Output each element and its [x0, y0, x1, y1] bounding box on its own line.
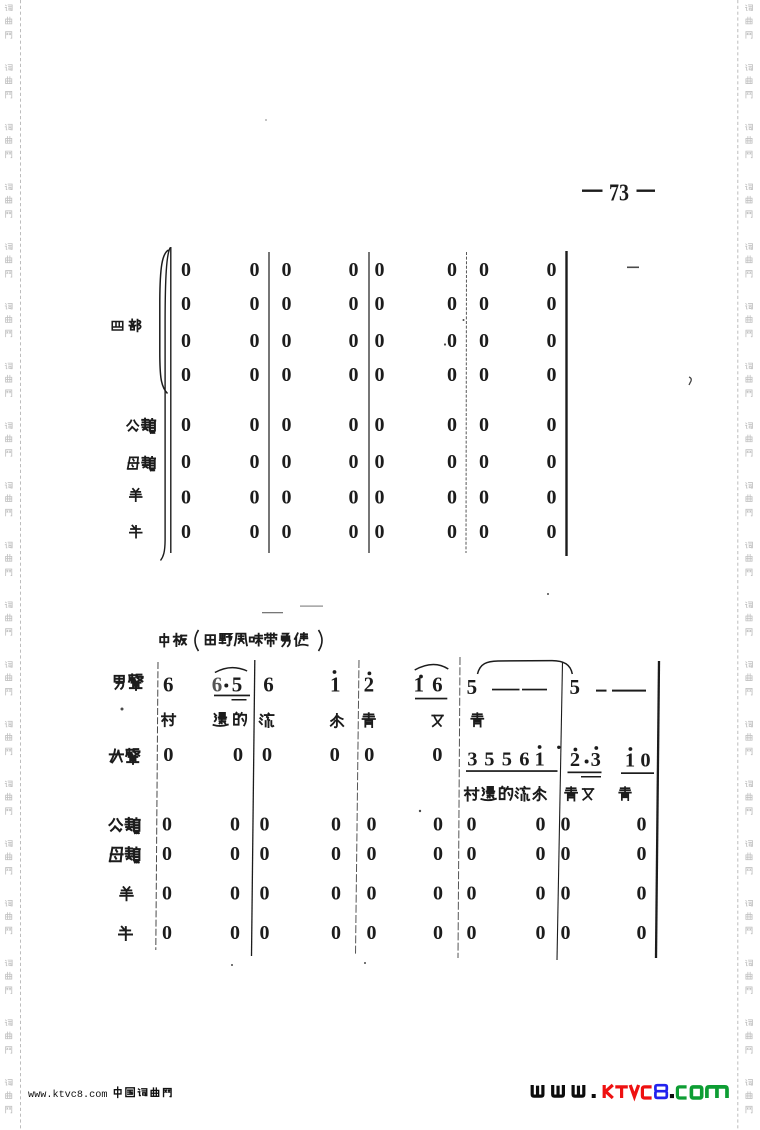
svg-text:0: 0	[282, 330, 292, 352]
svg-text:0: 0	[479, 487, 489, 509]
svg-text:0: 0	[637, 843, 647, 865]
svg-text:0: 0	[331, 843, 341, 865]
svg-text:0: 0	[467, 843, 477, 865]
svg-text:0: 0	[547, 521, 557, 543]
svg-text:0: 0	[640, 750, 650, 772]
svg-text:6: 6	[163, 673, 174, 697]
svg-text:0: 0	[367, 883, 377, 905]
svg-text:5: 5	[232, 673, 243, 697]
svg-text:0: 0	[536, 883, 546, 905]
svg-text:0: 0	[349, 414, 359, 436]
svg-text:5: 5	[569, 675, 580, 699]
svg-text:3: 3	[591, 749, 601, 771]
svg-text:0: 0	[349, 364, 359, 386]
svg-text:0: 0	[375, 293, 385, 315]
svg-text:0: 0	[230, 883, 240, 905]
svg-text:0: 0	[637, 883, 647, 905]
svg-text:0: 0	[447, 259, 457, 281]
svg-text:0: 0	[479, 293, 489, 315]
svg-text:0: 0	[467, 883, 477, 905]
svg-text:0: 0	[250, 487, 260, 509]
svg-text:0: 0	[181, 521, 191, 543]
svg-text:0: 0	[547, 487, 557, 509]
svg-text:0: 0	[349, 330, 359, 352]
svg-text:0: 0	[367, 922, 377, 944]
svg-text:5: 5	[467, 675, 478, 699]
svg-text:0: 0	[547, 451, 557, 473]
svg-text:0: 0	[331, 883, 341, 905]
svg-text:0: 0	[467, 814, 477, 836]
svg-text:0: 0	[349, 521, 359, 543]
svg-text:0: 0	[375, 330, 385, 352]
svg-text:0: 0	[181, 259, 191, 281]
svg-text:0: 0	[250, 259, 260, 281]
svg-text:0: 0	[250, 451, 260, 473]
svg-text:0: 0	[331, 922, 341, 944]
svg-text:0: 0	[181, 364, 191, 386]
svg-text:0: 0	[349, 259, 359, 281]
svg-text:www.ktvc8.com: www.ktvc8.com	[28, 1089, 107, 1101]
svg-text:0: 0	[162, 843, 172, 865]
svg-text:0: 0	[447, 364, 457, 386]
svg-text:0: 0	[637, 814, 647, 836]
svg-text:0: 0	[561, 843, 571, 865]
svg-text:0: 0	[433, 814, 443, 836]
svg-text:0: 0	[250, 414, 260, 436]
svg-text:0: 0	[233, 744, 243, 766]
svg-text:0: 0	[561, 922, 571, 944]
svg-text:0: 0	[250, 364, 260, 386]
svg-text:0: 0	[282, 259, 292, 281]
svg-text:0: 0	[260, 883, 270, 905]
svg-text:0: 0	[349, 451, 359, 473]
svg-text:6: 6	[212, 673, 223, 697]
svg-text:0: 0	[260, 814, 270, 836]
svg-text:0: 0	[364, 744, 374, 766]
svg-text:0: 0	[162, 883, 172, 905]
svg-text:0: 0	[561, 883, 571, 905]
svg-text:0: 0	[447, 487, 457, 509]
svg-text:0: 0	[262, 744, 272, 766]
svg-text:0: 0	[637, 922, 647, 944]
svg-text:0: 0	[375, 259, 385, 281]
svg-text:0: 0	[561, 814, 571, 836]
svg-text:73: 73	[609, 180, 629, 207]
svg-text:0: 0	[367, 814, 377, 836]
svg-text:0: 0	[282, 521, 292, 543]
svg-text:6: 6	[519, 749, 529, 771]
svg-text:5: 5	[484, 749, 494, 771]
svg-text:0: 0	[547, 293, 557, 315]
svg-text:0: 0	[260, 922, 270, 944]
svg-text:0: 0	[432, 744, 442, 766]
svg-text:0: 0	[181, 293, 191, 315]
svg-text:0: 0	[547, 259, 557, 281]
svg-text:0: 0	[547, 330, 557, 352]
svg-text:0: 0	[331, 814, 341, 836]
svg-text:0: 0	[181, 414, 191, 436]
svg-text:0: 0	[375, 521, 385, 543]
svg-text:2: 2	[364, 673, 375, 697]
svg-text:0: 0	[547, 414, 557, 436]
svg-text:0: 0	[375, 487, 385, 509]
svg-text:0: 0	[181, 487, 191, 509]
svg-text:0: 0	[479, 414, 489, 436]
svg-text:2: 2	[570, 749, 580, 771]
svg-text:0: 0	[536, 814, 546, 836]
svg-text:0: 0	[230, 922, 240, 944]
svg-text:0: 0	[536, 922, 546, 944]
svg-text:0: 0	[467, 922, 477, 944]
svg-text:0: 0	[230, 814, 240, 836]
svg-text:1: 1	[625, 750, 635, 772]
svg-text:5: 5	[502, 749, 512, 771]
svg-text:6: 6	[432, 673, 443, 697]
svg-text:0: 0	[163, 744, 173, 766]
svg-text:3: 3	[467, 749, 477, 771]
svg-text:0: 0	[250, 330, 260, 352]
svg-text:0: 0	[479, 330, 489, 352]
svg-text:1: 1	[534, 749, 544, 771]
svg-text:0: 0	[250, 293, 260, 315]
svg-text:0: 0	[447, 330, 457, 352]
svg-text:0: 0	[181, 330, 191, 352]
svg-text:0: 0	[230, 843, 240, 865]
svg-text:0: 0	[282, 364, 292, 386]
svg-text:0: 0	[447, 521, 457, 543]
svg-text:0: 0	[447, 451, 457, 473]
svg-text:6: 6	[263, 673, 274, 697]
svg-text:0: 0	[479, 521, 489, 543]
svg-text:0: 0	[447, 293, 457, 315]
svg-text:0: 0	[282, 293, 292, 315]
svg-text:0: 0	[375, 364, 385, 386]
svg-text:0: 0	[282, 414, 292, 436]
svg-text:0: 0	[479, 259, 489, 281]
svg-text:0: 0	[375, 451, 385, 473]
svg-text:0: 0	[447, 414, 457, 436]
svg-text:0: 0	[282, 451, 292, 473]
svg-text:0: 0	[433, 843, 443, 865]
svg-text:0: 0	[162, 814, 172, 836]
svg-text:0: 0	[479, 451, 489, 473]
svg-text:0: 0	[250, 521, 260, 543]
svg-text:0: 0	[479, 364, 489, 386]
svg-text:0: 0	[367, 843, 377, 865]
svg-text:0: 0	[162, 922, 172, 944]
svg-text:0: 0	[375, 414, 385, 436]
svg-text:0: 0	[349, 487, 359, 509]
svg-text:0: 0	[536, 843, 546, 865]
svg-text:0: 0	[433, 922, 443, 944]
svg-text:0: 0	[181, 451, 191, 473]
svg-text:0: 0	[330, 744, 340, 766]
svg-text:0: 0	[260, 843, 270, 865]
svg-text:1: 1	[330, 673, 341, 697]
svg-text:0: 0	[349, 293, 359, 315]
svg-text:0: 0	[433, 883, 443, 905]
svg-text:0: 0	[547, 364, 557, 386]
svg-text:0: 0	[282, 487, 292, 509]
